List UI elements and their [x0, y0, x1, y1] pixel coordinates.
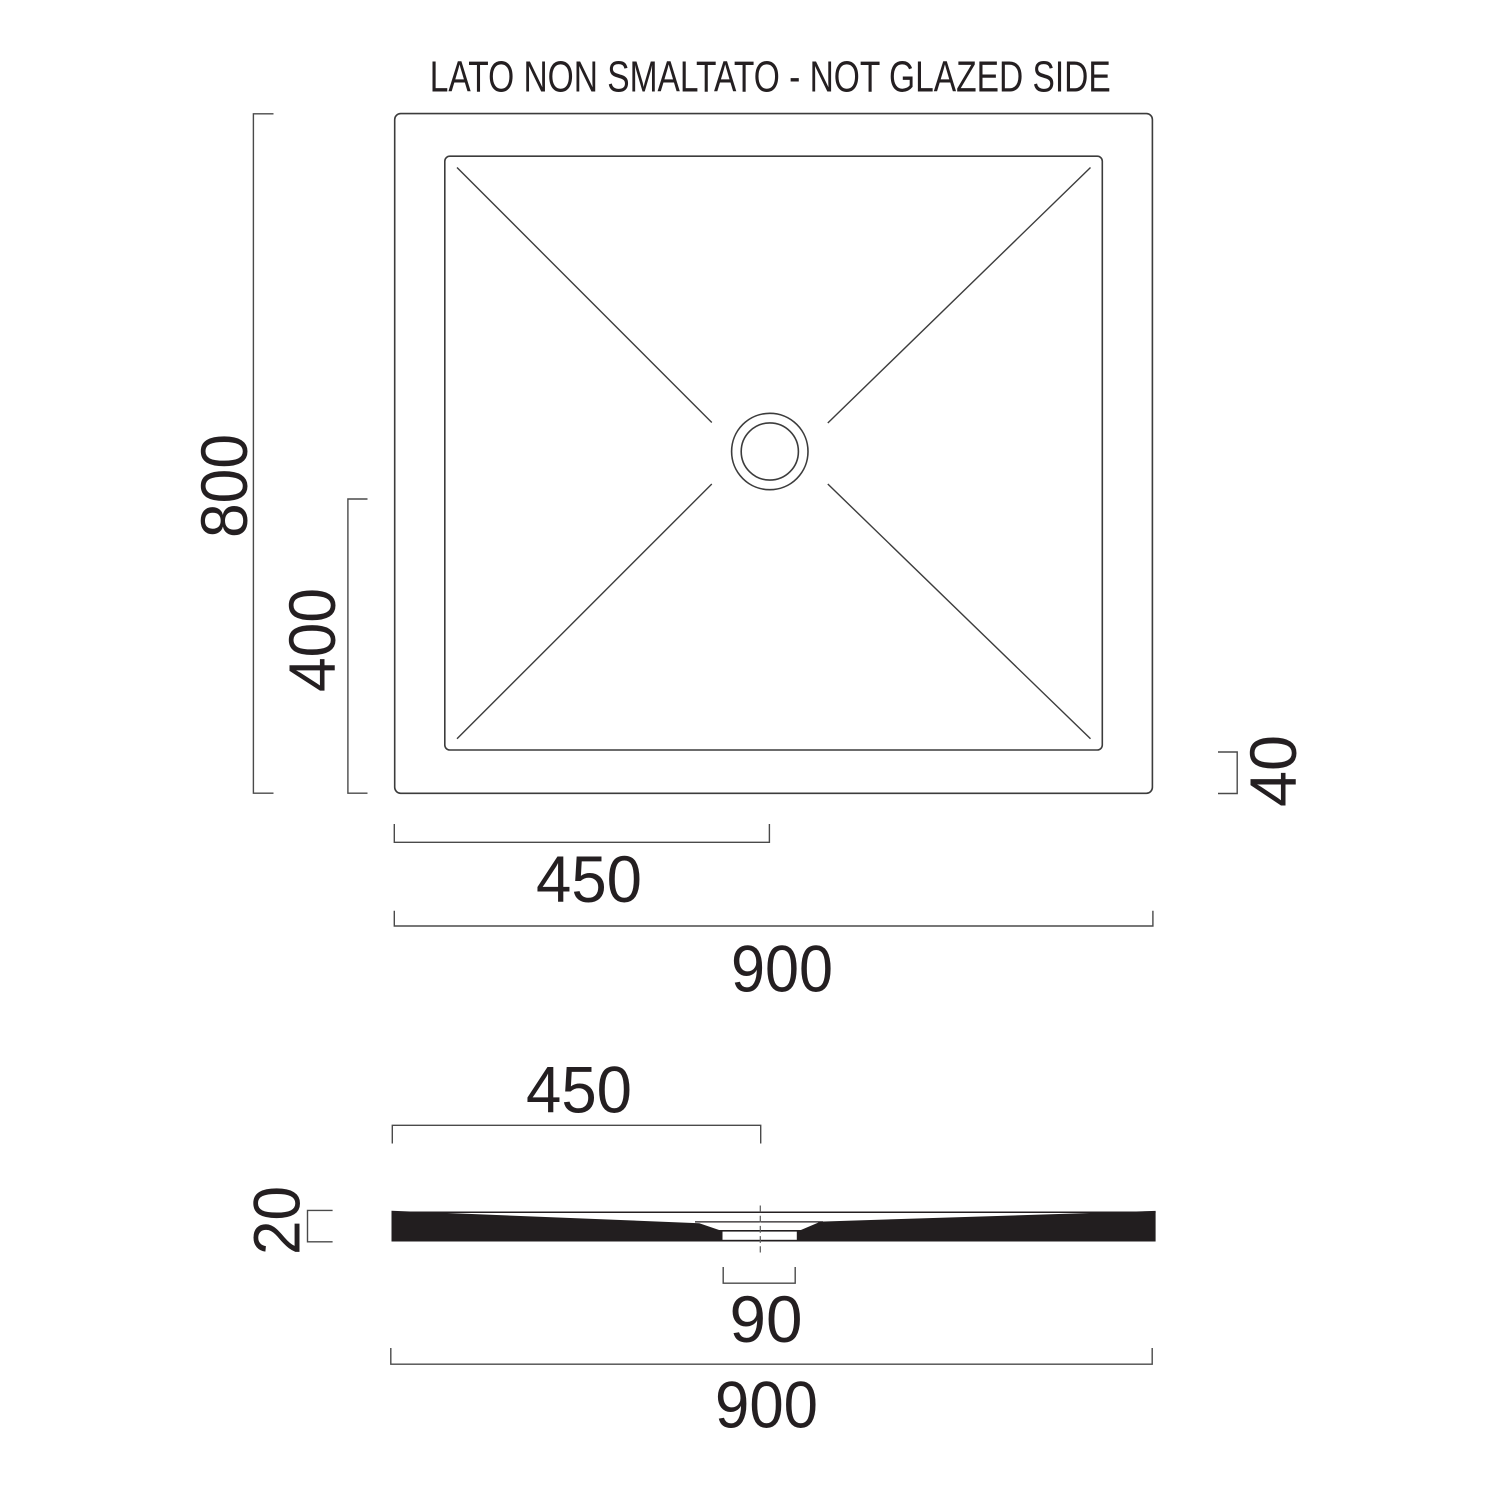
svg-text:90: 90: [730, 1282, 803, 1356]
svg-text:800: 800: [187, 434, 261, 538]
svg-text:20: 20: [240, 1186, 314, 1255]
svg-text:400: 400: [275, 588, 349, 692]
svg-text:450: 450: [526, 1053, 632, 1127]
svg-text:40: 40: [1236, 735, 1310, 807]
svg-text:900: 900: [731, 932, 833, 1006]
svg-text:900: 900: [715, 1368, 818, 1442]
svg-text:450: 450: [536, 842, 642, 916]
svg-text:LATO NON SMALTATO - NOT GLAZED: LATO NON SMALTATO - NOT GLAZED SIDE: [430, 53, 1111, 102]
